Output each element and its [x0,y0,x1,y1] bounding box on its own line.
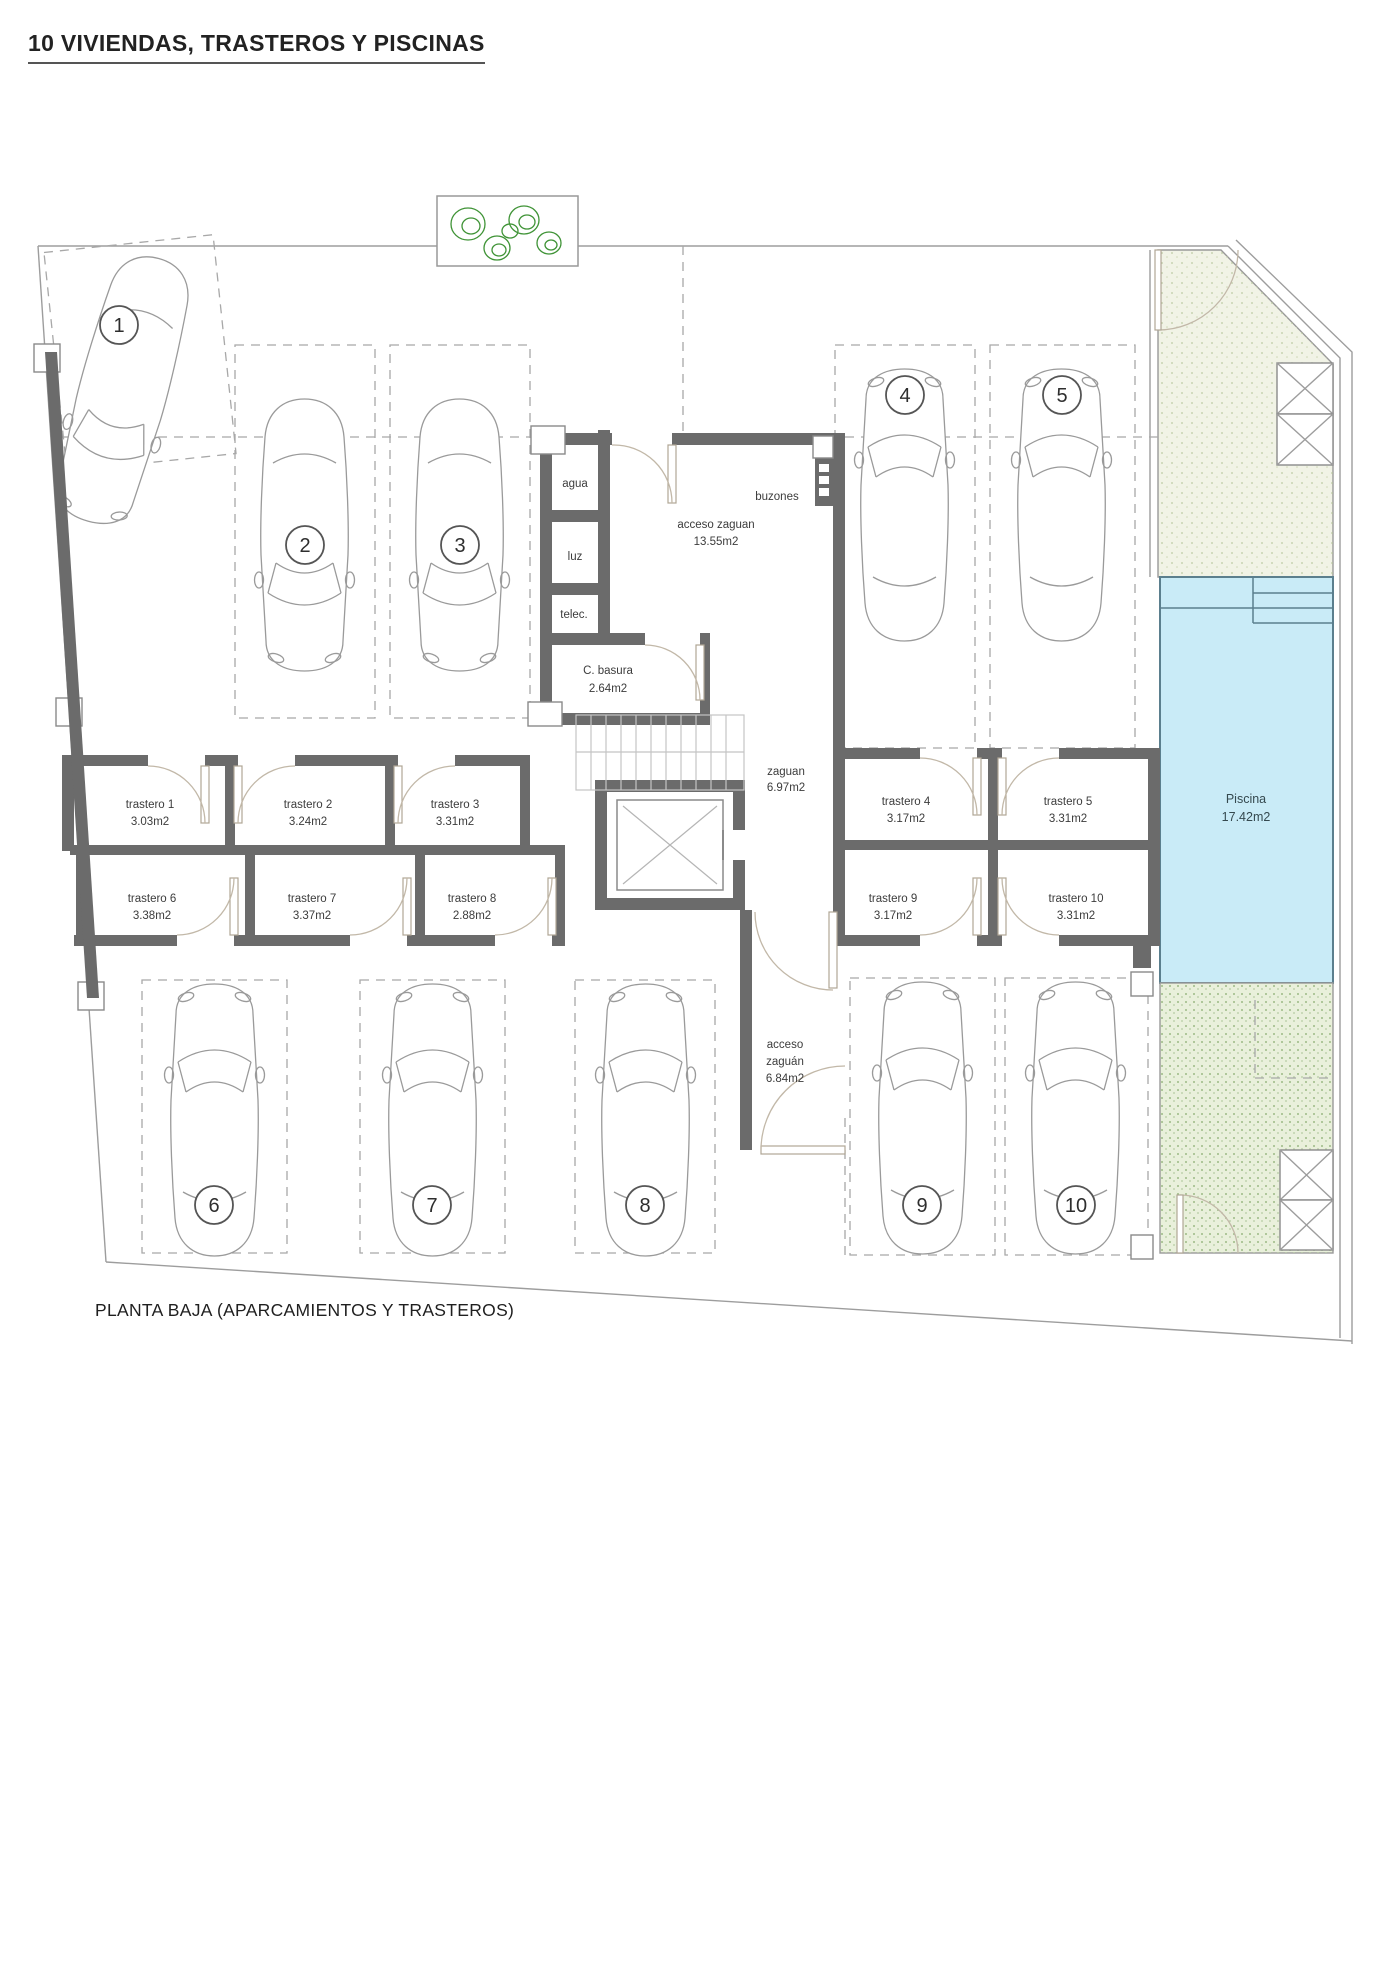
trastero-4-label: trastero 4 3.17m2 [882,796,931,825]
svg-text:trastero 10: trastero 10 [1049,893,1104,905]
trastero-9-label: trastero 9 3.17m2 [869,893,918,922]
svg-text:3.31m2: 3.31m2 [1049,813,1087,825]
parking-space-8: 8 [626,1186,664,1224]
svg-text:5: 5 [1056,385,1067,407]
svg-text:3.31m2: 3.31m2 [436,816,474,828]
svg-text:acceso zaguan: acceso zaguan [677,519,754,531]
parking-space-3: 3 [441,526,479,564]
svg-text:1: 1 [113,315,124,337]
svg-text:acceso: acceso [767,1039,803,1051]
trastero-1-label: trastero 1 3.03m2 [126,799,175,828]
svg-text:3.17m2: 3.17m2 [887,813,925,825]
trastero-7-label: trastero 7 3.37m2 [288,893,337,922]
svg-text:trastero 5: trastero 5 [1044,796,1093,808]
planter-box [1280,1150,1333,1250]
parking-space-9: 9 [903,1186,941,1224]
svg-text:trastero 2: trastero 2 [284,799,333,811]
svg-text:3.17m2: 3.17m2 [874,910,912,922]
svg-text:zaguan: zaguan [767,766,805,778]
parking-space-7: 7 [413,1186,451,1224]
acceso-zaguan-sur-label: acceso zaguán 6.84m2 [766,1039,804,1085]
svg-text:zaguán: zaguán [766,1056,804,1068]
planter-box [1277,363,1333,465]
svg-text:trastero 4: trastero 4 [882,796,931,808]
cars [40,246,1125,1256]
parking-space-1: 1 [100,306,138,344]
luz-label: luz [568,551,583,563]
svg-text:3.38m2: 3.38m2 [133,910,171,922]
svg-text:9: 9 [916,1195,927,1217]
svg-text:2: 2 [299,535,310,557]
elevator [617,800,723,890]
parking-space-2: 2 [286,526,324,564]
telec-label: telec. [560,609,588,621]
svg-text:10: 10 [1065,1195,1087,1217]
garden-north [1150,250,1333,577]
pool-label: Piscina [1226,792,1266,806]
walls-right-block [833,748,1160,968]
svg-text:trastero 9: trastero 9 [869,893,918,905]
svg-text:2.88m2: 2.88m2 [453,910,491,922]
svg-text:trastero 6: trastero 6 [128,893,177,905]
parking-space-10: 10 [1057,1186,1095,1224]
svg-text:trastero 3: trastero 3 [431,799,480,811]
svg-text:trastero 1: trastero 1 [126,799,175,811]
zaguan-label: zaguan 6.97m2 [767,766,805,794]
trastero-5-label: trastero 5 3.31m2 [1044,796,1093,825]
svg-text:3.03m2: 3.03m2 [131,816,169,828]
trastero-6-label: trastero 6 3.38m2 [128,893,177,922]
svg-text:3: 3 [454,535,465,557]
svg-text:6: 6 [208,1195,219,1217]
plan-sheet: 10 VIVIENDAS, TRASTEROS Y PISCINAS [0,0,1400,1980]
svg-text:7: 7 [426,1195,437,1217]
svg-text:3.24m2: 3.24m2 [289,816,327,828]
buzones-label: buzones [755,491,799,503]
pool: Piscina 17.42m2 [1160,577,1333,983]
trastero-10-label: trastero 10 3.31m2 [1049,893,1104,922]
svg-text:3.31m2: 3.31m2 [1057,910,1095,922]
trastero-8-label: trastero 8 2.88m2 [448,893,497,922]
trastero-2-label: trastero 2 3.24m2 [284,799,333,828]
svg-text:13.55m2: 13.55m2 [694,536,739,548]
svg-text:8: 8 [639,1195,650,1217]
parking-space-6: 6 [195,1186,233,1224]
agua-label: agua [562,478,588,490]
basura-label: C. basura 2.64m2 [583,665,633,695]
svg-text:4: 4 [899,385,910,407]
staircase [576,715,744,790]
pool-area: 17.42m2 [1222,810,1271,824]
garden-south [1160,983,1333,1253]
acceso-zaguan-label: acceso zaguan 13.55m2 [677,519,754,548]
floor-plan: Piscina 17.42m2 [0,0,1400,1980]
plan-caption: PLANTA BAJA (APARCAMIENTOS Y TRASTEROS) [95,1300,514,1321]
trastero-3-label: trastero 3 3.31m2 [431,799,480,828]
svg-text:6.97m2: 6.97m2 [767,782,805,794]
parking-space-4: 4 [886,376,924,414]
tree-planter [437,196,578,266]
svg-text:trastero 7: trastero 7 [288,893,337,905]
parking-space-5: 5 [1043,376,1081,414]
svg-text:6.84m2: 6.84m2 [766,1073,804,1085]
svg-text:trastero 8: trastero 8 [448,893,497,905]
svg-text:3.37m2: 3.37m2 [293,910,331,922]
svg-text:C. basura: C. basura [583,665,633,677]
svg-text:2.64m2: 2.64m2 [589,683,627,695]
